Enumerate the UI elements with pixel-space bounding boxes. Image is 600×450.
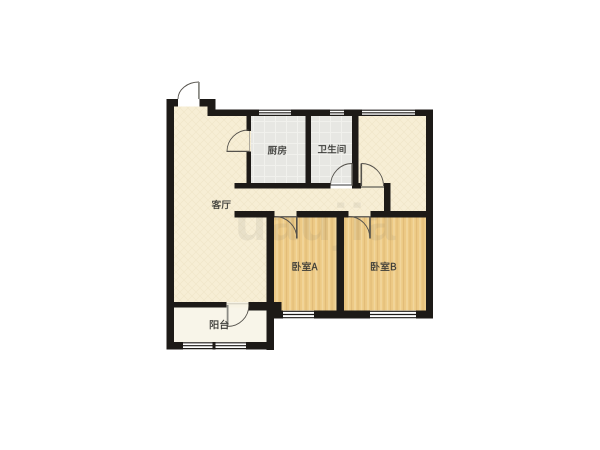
svg-text:uaujia: uaujia [235,194,397,252]
